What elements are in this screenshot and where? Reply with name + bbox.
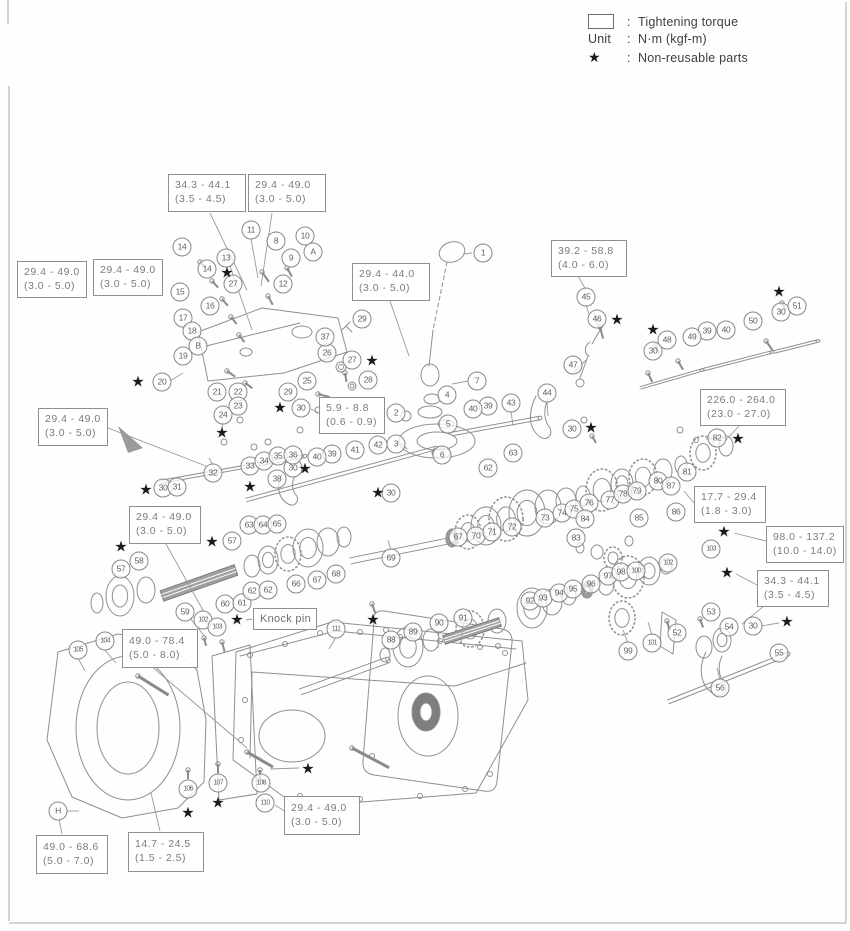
part-callout-31: 31 (168, 478, 187, 497)
part-callout-57: 57 (112, 560, 131, 579)
part-callout-16: 16 (201, 297, 220, 316)
part-callout-5: 5 (439, 415, 458, 434)
non-reusable-star: ★ (205, 535, 218, 550)
part-callout-37: 37 (316, 328, 335, 347)
non-reusable-star: ★ (131, 375, 144, 390)
part-callout-26: 26 (318, 344, 337, 363)
part-callout-95: 95 (564, 580, 583, 599)
part-callout-55: 55 (770, 644, 789, 663)
part-callout-53: 53 (702, 603, 721, 622)
part-callout-66: 66 (287, 575, 306, 594)
non-reusable-star: ★ (273, 401, 286, 416)
part-callout-41: 41 (346, 441, 365, 460)
part-callout-12: 12 (274, 275, 293, 294)
torque-spec-box: 14.7 - 24.5(1.5 - 2.5) (128, 832, 204, 872)
part-callout-11: 11 (242, 221, 261, 240)
part-callout-40: 40 (717, 321, 736, 340)
part-callout-42: 42 (369, 436, 388, 455)
torque-spec-box: 98.0 - 137.2(10.0 - 14.0) (766, 526, 844, 563)
non-reusable-star: ★ (215, 426, 228, 441)
part-callout-30: 30 (292, 399, 311, 418)
non-reusable-star: ★ (243, 480, 256, 495)
part-callout-102: 102 (659, 554, 678, 573)
non-reusable-star: ★ (298, 462, 311, 477)
part-callout-68: 68 (327, 565, 346, 584)
non-reusable-star: ★ (646, 323, 659, 338)
torque-spec-box: 29.4 - 49.0(3.0 - 5.0) (248, 174, 326, 212)
part-callout-47: 47 (564, 356, 583, 375)
torque-spec-box: 49.0 - 68.6(5.0 - 7.0) (36, 835, 108, 874)
part-callout-108: 108 (252, 774, 271, 793)
part-callout-91: 91 (454, 609, 473, 628)
part-callout-54: 54 (720, 618, 739, 637)
non-reusable-star: ★ (181, 806, 194, 821)
torque-spec-box: 5.9 - 8.8(0.6 - 0.9) (319, 397, 385, 434)
part-callout-46: 46 (588, 310, 607, 329)
part-callout-62: 62 (259, 581, 278, 600)
part-callout-6: 6 (433, 446, 452, 465)
part-callout-59: 59 (176, 603, 195, 622)
non-reusable-star: ★ (139, 483, 152, 498)
part-callout-49: 49 (683, 328, 702, 347)
part-callout-69: 69 (382, 549, 401, 568)
part-callout-71: 71 (483, 523, 502, 542)
callout-overlay: 34.3 - 44.1(3.5 - 4.5)29.4 - 49.0(3.0 - … (0, 0, 850, 931)
non-reusable-star: ★ (371, 486, 384, 501)
non-reusable-star: ★ (780, 615, 793, 630)
part-callout-28: 28 (359, 371, 378, 390)
part-callout-67: 67 (449, 528, 468, 547)
part-callout-14: 14 (173, 238, 192, 257)
part-callout-86: 86 (667, 503, 686, 522)
exploded-parts-diagram-page: : Tightening torque Unit : N·m (kgf-m) ★… (0, 0, 850, 931)
part-callout-103: 103 (208, 618, 227, 637)
part-callout-51: 51 (788, 297, 807, 316)
part-callout-7: 7 (468, 372, 487, 391)
part-callout-20: 20 (153, 373, 172, 392)
non-reusable-star: ★ (114, 540, 127, 555)
part-callout-90: 90 (430, 614, 449, 633)
non-reusable-star: ★ (366, 613, 379, 628)
part-callout-25: 25 (298, 372, 317, 391)
torque-spec-box: 49.0 - 78.4(5.0 - 8.0) (122, 629, 198, 668)
torque-spec-box: 29.4 - 49.0(3.0 - 5.0) (284, 796, 360, 835)
part-callout-62: 62 (479, 459, 498, 478)
part-callout-21: 21 (208, 383, 227, 402)
torque-spec-box: 17.7 - 29.4(1.8 - 3.0) (694, 486, 766, 523)
part-callout-3: 3 (387, 435, 406, 454)
part-callout-1: 1 (474, 244, 493, 263)
non-reusable-star: ★ (584, 421, 597, 436)
torque-spec-box: 34.3 - 44.1(3.5 - 4.5) (757, 570, 829, 607)
part-callout-30: 30 (744, 617, 763, 636)
part-callout-9: 9 (282, 249, 301, 268)
non-reusable-star: ★ (301, 762, 314, 777)
part-callout-88: 88 (382, 631, 401, 650)
part-callout-43: 43 (502, 394, 521, 413)
part-callout-99: 99 (619, 642, 638, 661)
part-callout-101: 101 (643, 634, 662, 653)
non-reusable-star: ★ (731, 432, 744, 447)
part-callout-14: 14 (198, 260, 217, 279)
torque-spec-box: 29.4 - 49.0(3.0 - 5.0) (17, 261, 87, 298)
torque-spec-box: 29.4 - 44.0(3.0 - 5.0) (352, 263, 430, 301)
part-callout-48: 48 (658, 331, 677, 350)
non-reusable-star: ★ (220, 266, 233, 281)
part-callout-57: 57 (223, 532, 242, 551)
part-callout-67: 67 (308, 571, 327, 590)
part-callout-107: 107 (209, 774, 228, 793)
part-callout-79: 79 (628, 482, 647, 501)
part-callout-63: 63 (504, 444, 523, 463)
part-callout-A: A (304, 243, 323, 262)
part-callout-65: 65 (268, 515, 287, 534)
part-callout-2: 2 (387, 404, 406, 423)
part-callout-58: 58 (130, 552, 149, 571)
part-callout-19: 19 (174, 347, 193, 366)
part-callout-30: 30 (563, 420, 582, 439)
part-callout-89: 89 (404, 623, 423, 642)
part-callout-103: 103 (702, 540, 721, 559)
part-callout-38: 38 (268, 470, 287, 489)
part-callout-81: 81 (678, 463, 697, 482)
part-callout-8: 8 (267, 232, 286, 251)
part-callout-106: 106 (179, 780, 198, 799)
non-reusable-star: ★ (610, 313, 623, 328)
part-callout-29: 29 (353, 310, 372, 329)
part-callout-56: 56 (711, 679, 730, 698)
part-callout-44: 44 (538, 384, 557, 403)
part-callout-H: H (49, 802, 68, 821)
part-callout-15: 15 (171, 283, 190, 302)
part-callout-104: 104 (96, 632, 115, 651)
part-callout-27: 27 (343, 351, 362, 370)
part-callout-83: 83 (567, 529, 586, 548)
part-callout-40: 40 (464, 400, 483, 419)
part-callout-45: 45 (577, 288, 596, 307)
part-callout-32: 32 (204, 464, 223, 483)
torque-spec-box: 226.0 - 264.0(23.0 - 27.0) (700, 389, 786, 426)
part-callout-72: 72 (503, 518, 522, 537)
part-callout-105: 105 (69, 641, 88, 660)
part-callout-84: 84 (576, 510, 595, 529)
torque-spec-box: 34.3 - 44.1(3.5 - 4.5) (168, 174, 246, 212)
part-callout-100: 100 (627, 562, 646, 581)
non-reusable-star: ★ (365, 354, 378, 369)
torque-spec-box: 39.2 - 58.8(4.0 - 6.0) (551, 240, 627, 277)
non-reusable-star: ★ (230, 613, 243, 628)
part-callout-85: 85 (630, 509, 649, 528)
torque-spec-box: 29.4 - 49.0(3.0 - 5.0) (38, 408, 108, 446)
part-callout-4: 4 (438, 386, 457, 405)
part-callout-50: 50 (744, 312, 763, 331)
torque-spec-box: 29.4 - 49.0(3.0 - 5.0) (93, 259, 163, 296)
non-reusable-star: ★ (720, 566, 733, 581)
torque-spec-box: 29.4 - 49.0(3.0 - 5.0) (129, 506, 201, 544)
part-callout-82: 82 (708, 429, 727, 448)
part-callout-52: 52 (668, 624, 687, 643)
non-reusable-star: ★ (772, 285, 785, 300)
part-callout-110: 110 (256, 794, 275, 813)
part-callout-111: 111 (327, 620, 346, 639)
part-callout-24: 24 (214, 406, 233, 425)
knock-pin-label: Knock pin (253, 608, 317, 630)
non-reusable-star: ★ (717, 525, 730, 540)
part-callout-87: 87 (662, 477, 681, 496)
non-reusable-star: ★ (211, 796, 224, 811)
